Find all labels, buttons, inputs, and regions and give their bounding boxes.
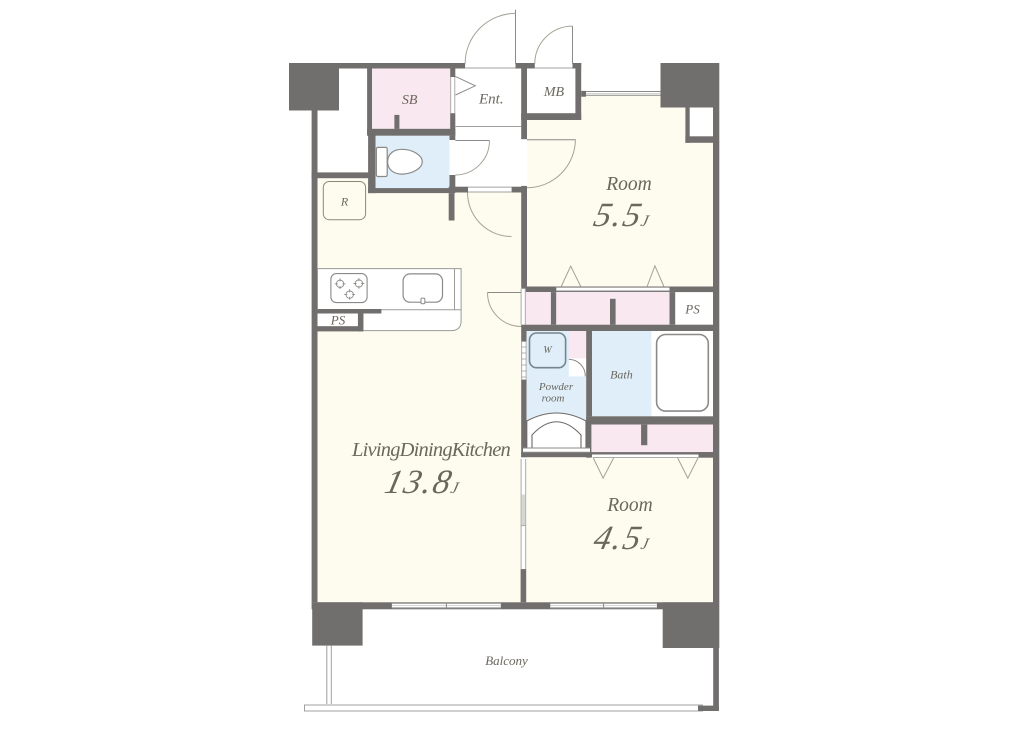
svg-text:13.8J: 13.8J: [381, 463, 465, 501]
svg-text:Powder: Powder: [538, 381, 574, 393]
svg-text:Ent.: Ent.: [478, 92, 504, 108]
svg-text:PS: PS: [684, 302, 700, 317]
svg-text:Room: Room: [606, 495, 653, 516]
svg-text:SB: SB: [402, 93, 418, 108]
svg-text:LivingDiningKitchen: LivingDiningKitchen: [351, 439, 510, 461]
svg-text:R: R: [340, 195, 349, 209]
svg-text:PS: PS: [330, 313, 346, 328]
svg-text:Room: Room: [605, 174, 652, 195]
svg-text:room: room: [542, 393, 565, 405]
svg-text:Balcony: Balcony: [485, 653, 528, 668]
svg-text:Bath: Bath: [610, 368, 633, 382]
svg-text:MB: MB: [543, 85, 565, 100]
